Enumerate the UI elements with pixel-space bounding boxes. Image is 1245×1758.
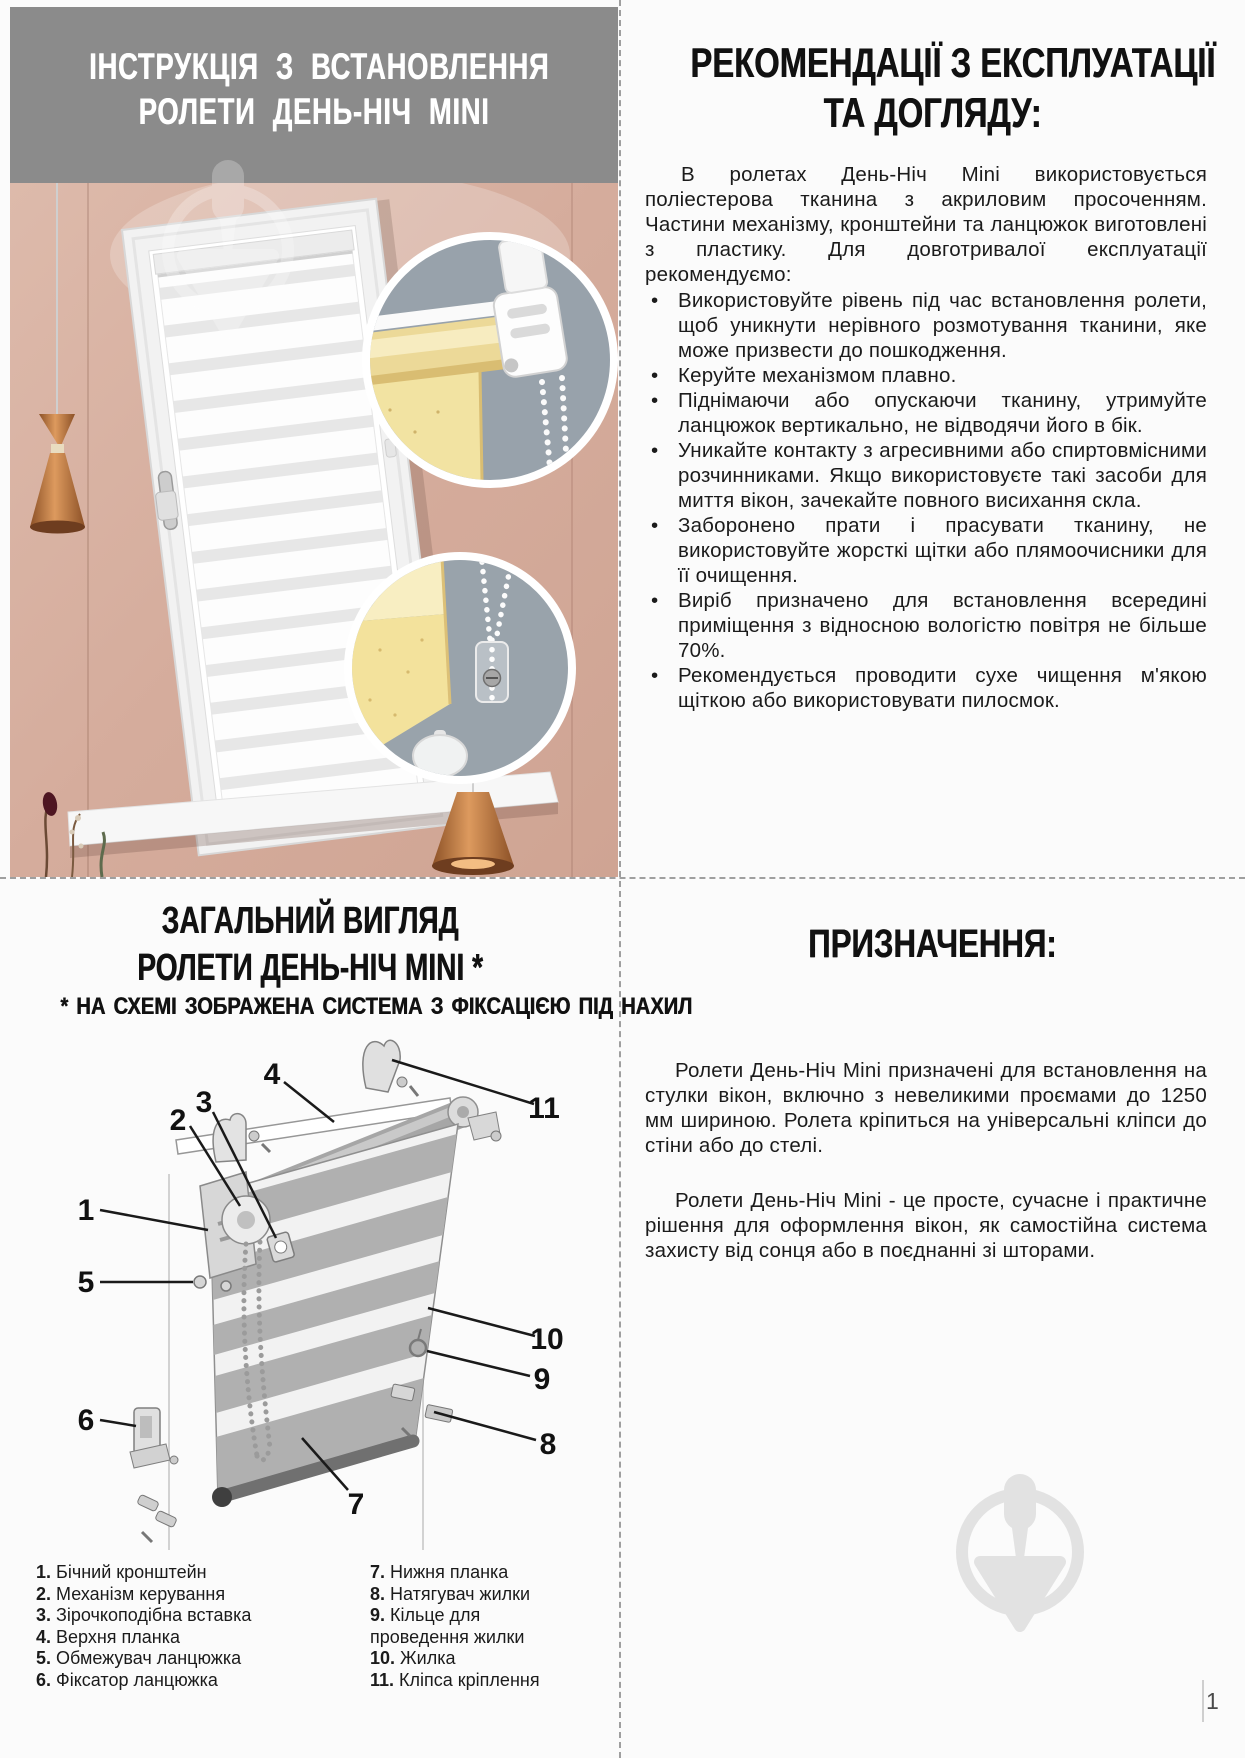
legend-item: 9. Кільце для проведення жилки <box>370 1605 582 1648</box>
vertical-dashed-separator <box>619 0 621 1758</box>
overview-title: ЗАГАЛЬНИЙ ВИГЛЯД РОЛЕТИ ДЕНЬ-НІЧ MINI * <box>0 898 620 992</box>
purpose-paragraph: Ролети День-Ніч Mini - це просте, сучасн… <box>645 1188 1207 1263</box>
legend-item: 3. Зірочкоподібна вставка <box>36 1605 336 1627</box>
legend-number: 11. <box>370 1670 394 1690</box>
legend-left-column: 1. Бічний кронштейн 2. Механізм керуванн… <box>36 1562 336 1691</box>
legend-number: 1. <box>36 1562 51 1582</box>
diagram-callout: 1 <box>78 1194 95 1227</box>
purpose-title: ПРИЗНАЧЕННЯ: <box>622 920 1243 968</box>
legend-number: 4. <box>36 1627 51 1647</box>
legend-text: Кільце для проведення жилки <box>370 1605 524 1647</box>
purpose-paragraph: Ролети День-Ніч Mini призначені для вста… <box>645 1058 1207 1158</box>
diagram-callout: 6 <box>78 1404 95 1437</box>
legend-item: 2. Механізм керування <box>36 1584 336 1606</box>
care-bullet: Рекомендується проводити сухе чищення м'… <box>645 663 1207 713</box>
legend-text: Обмежувач ланцюжка <box>56 1648 241 1668</box>
legend-item: 11. Кліпса кріплення <box>370 1670 582 1692</box>
legend-item: 5. Обмежувач ланцюжка <box>36 1648 336 1670</box>
diagram-callout: 9 <box>534 1363 551 1396</box>
legend-text: Натягувач жилки <box>390 1584 530 1604</box>
overview-title-line1: ЗАГАЛЬНИЙ ВИГЛЯД <box>81 898 540 945</box>
legend-number: 8. <box>370 1584 385 1604</box>
mount-clip-right <box>363 1040 418 1096</box>
care-bullet: Піднімаючи або опускаючи тканину, утриму… <box>645 388 1207 438</box>
care-bullet-list: Використовуйте рівень під час встановлен… <box>645 288 1207 713</box>
install-title-line2: РОЛЕТИ ДЕНЬ-НІЧ MINI <box>89 89 539 134</box>
watermark-icon <box>940 1474 1100 1636</box>
legend-text: Механізм керування <box>56 1584 225 1604</box>
care-bullet: Виріб призначено для встановлення всеред… <box>645 588 1207 663</box>
legend-number: 10. <box>370 1648 395 1668</box>
diagram-callout: 2 <box>170 1104 187 1137</box>
chain-stopper <box>194 1276 206 1288</box>
legend-item: 6. Фіксатор ланцюжка <box>36 1670 336 1692</box>
blind-exploded-diagram: 1 2 3 4 5 6 7 8 9 10 11 <box>50 1024 570 1554</box>
overview-subtitle-text: * НА СХЕМІ ЗОБРАЖЕНА СИСТЕМА З ФІКСАЦІЄЮ… <box>60 993 692 1021</box>
care-bullet: Керуйте механізмом плавно. <box>645 363 1207 388</box>
care-title-line1: РЕКОМЕНДАЦІЇ З ЕКСПЛУАТАЦІЇ <box>690 38 1174 88</box>
legend-number: 9. <box>370 1605 385 1625</box>
diagram-callout: 10 <box>530 1323 563 1356</box>
diagram-callout: 7 <box>348 1488 365 1521</box>
care-bullet: Заборонено прати і прасувати тканину, не… <box>645 513 1207 588</box>
diagram-callout: 4 <box>264 1058 281 1091</box>
inset-mechanism-closeup <box>360 236 614 486</box>
install-title-line1: ІНСТРУКЦІЯ З ВСТАНОВЛЕННЯ <box>89 44 539 89</box>
legend-text: Бічний кронштейн <box>56 1562 207 1582</box>
diagram-callout: 5 <box>78 1266 95 1299</box>
diagram-callout: 8 <box>540 1428 557 1461</box>
legend-number: 6. <box>36 1670 51 1690</box>
legend-text: Кліпса кріплення <box>399 1670 540 1690</box>
legend-item: 4. Верхня планка <box>36 1627 336 1649</box>
legend-text: Жилка <box>400 1648 455 1668</box>
inset-chain-closeup <box>348 556 572 780</box>
horizontal-dashed-separator <box>0 877 1245 879</box>
install-title: ІНСТРУКЦІЯ З ВСТАНОВЛЕННЯ РОЛЕТИ ДЕНЬ-НІ… <box>10 44 618 134</box>
purpose-title-text: ПРИЗНАЧЕННЯ: <box>808 920 1057 968</box>
care-bullet: Використовуйте рівень під час встановлен… <box>645 288 1207 363</box>
care-bullet: Уникайте контакту з агресивними або спир… <box>645 438 1207 513</box>
legend-text: Верхня планка <box>56 1627 180 1647</box>
care-title: РЕКОМЕНДАЦІЇ З ЕКСПЛУАТАЦІЇ ТА ДОГЛЯДУ: <box>622 38 1243 138</box>
care-title-line2: ТА ДОГЛЯДУ: <box>690 88 1174 138</box>
legend-number: 7. <box>370 1562 385 1582</box>
legend-right-column: 7. Нижня планка 8. Натягувач жилки 9. Кі… <box>370 1562 582 1691</box>
legend-item: 8. Натягувач жилки <box>370 1584 582 1606</box>
instruction-leaflet-page: { "page": { "number": "1" }, "colors": {… <box>0 0 1245 1758</box>
legend-text: Зірочкоподібна вставка <box>56 1605 251 1625</box>
care-intro-paragraph: В ролетах День-Ніч Mini використовується… <box>645 162 1207 287</box>
overview-title-line2: РОЛЕТИ ДЕНЬ-НІЧ MINI * <box>81 945 540 992</box>
legend-number: 5. <box>36 1648 51 1668</box>
chain-fixator-part <box>130 1408 178 1542</box>
legend-item: 10. Жилка <box>370 1648 582 1670</box>
control-mechanism <box>492 285 568 378</box>
page-number-rule <box>1202 1680 1204 1722</box>
diagram-callout: 3 <box>196 1086 213 1119</box>
legend-text: Фіксатор ланцюжка <box>56 1670 218 1690</box>
overview-subtitle: * НА СХЕМІ ЗОБРАЖЕНА СИСТЕМА З ФІКСАЦІЄЮ… <box>0 993 620 1021</box>
page-number: 1 <box>1206 1688 1240 1715</box>
legend-text: Нижня планка <box>390 1562 508 1582</box>
legend-item: 7. Нижня планка <box>370 1562 582 1584</box>
legend-number: 2. <box>36 1584 51 1604</box>
legend-number: 3. <box>36 1605 51 1625</box>
diagram-callout: 11 <box>528 1092 560 1125</box>
legend-item: 1. Бічний кронштейн <box>36 1562 336 1584</box>
